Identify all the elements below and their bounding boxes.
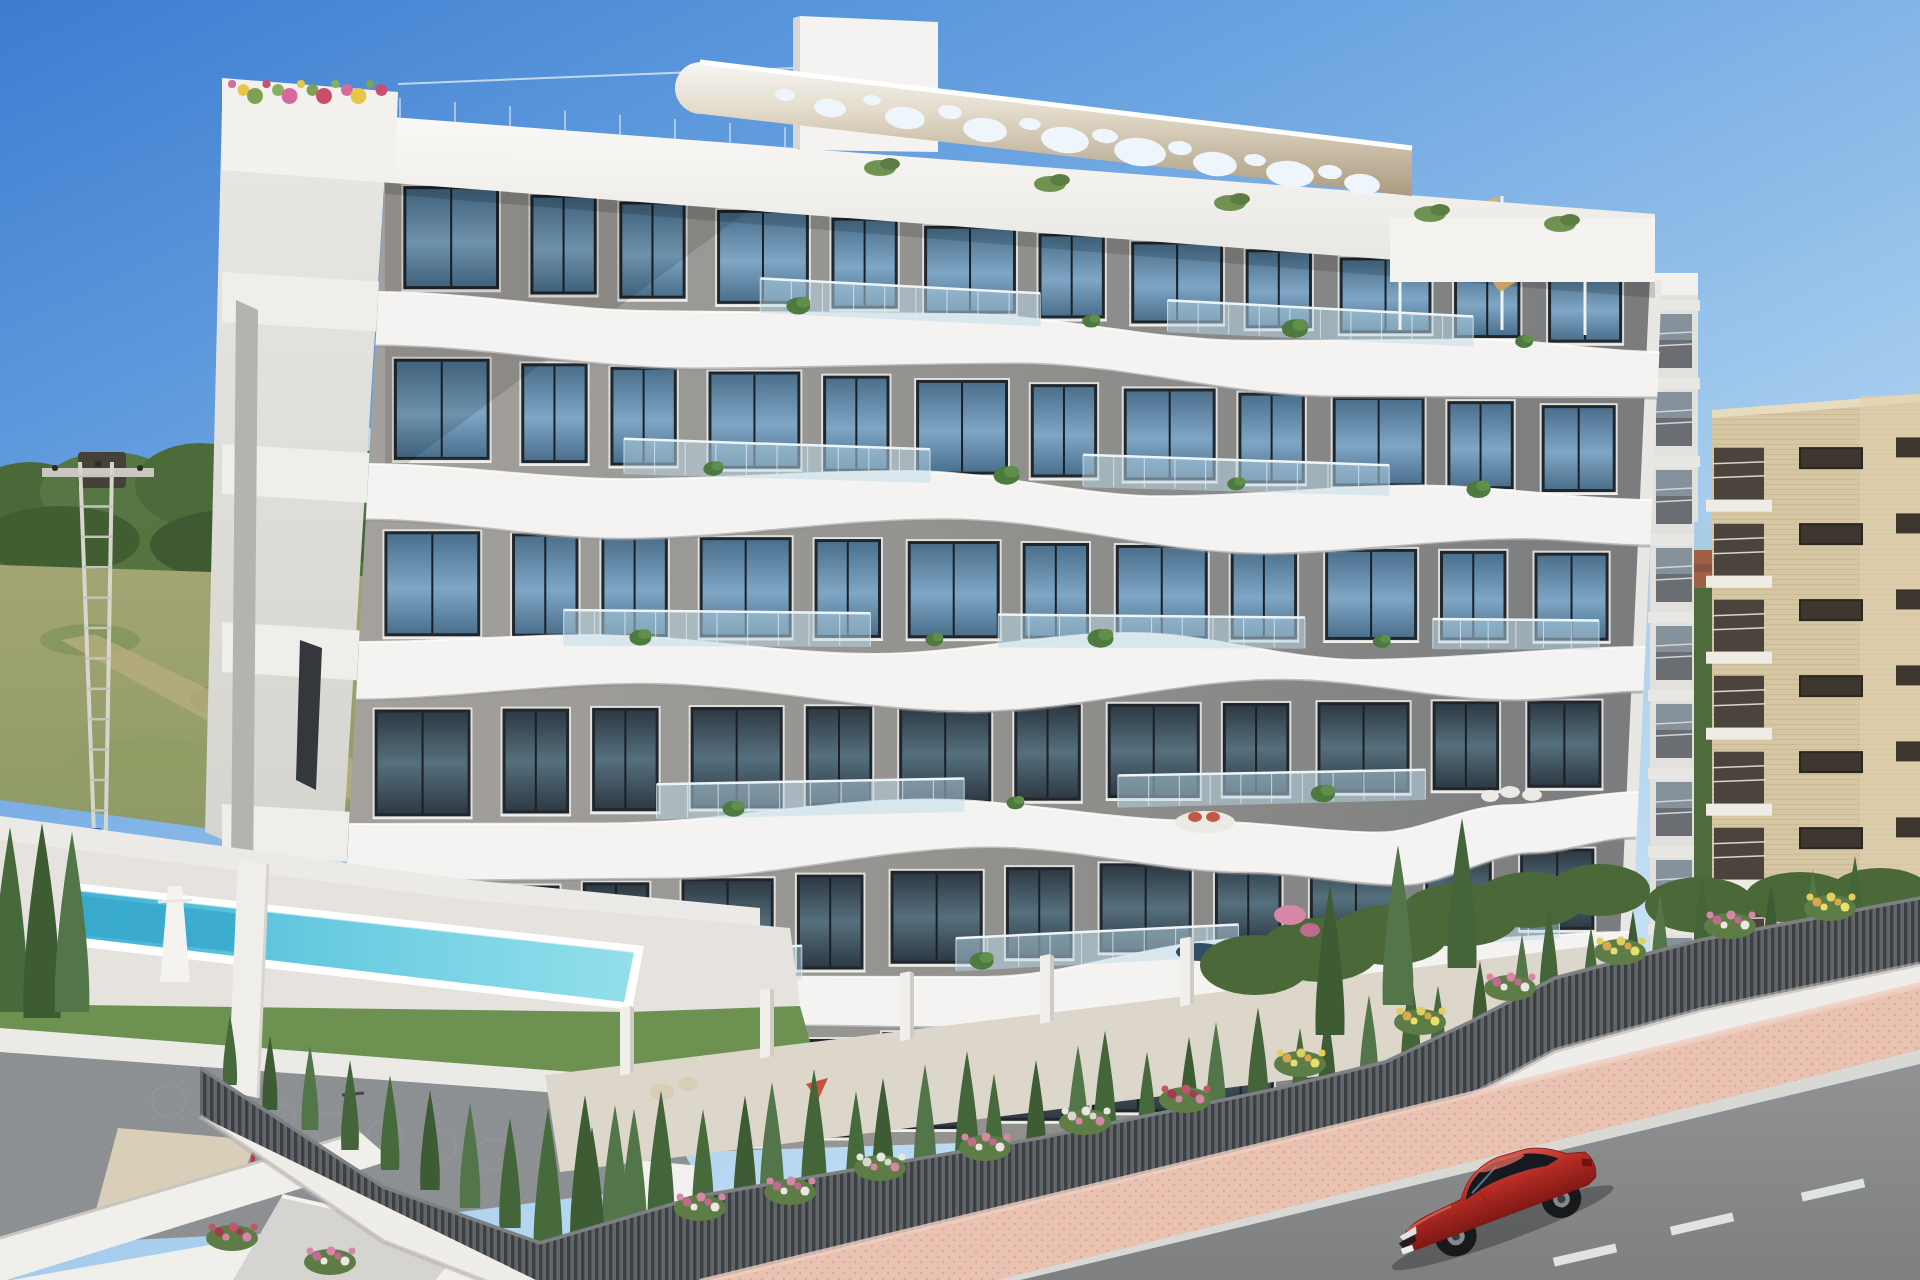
architectural-render <box>0 0 1920 1280</box>
scene-canvas <box>0 0 1920 1280</box>
render-svg <box>0 0 1920 1280</box>
